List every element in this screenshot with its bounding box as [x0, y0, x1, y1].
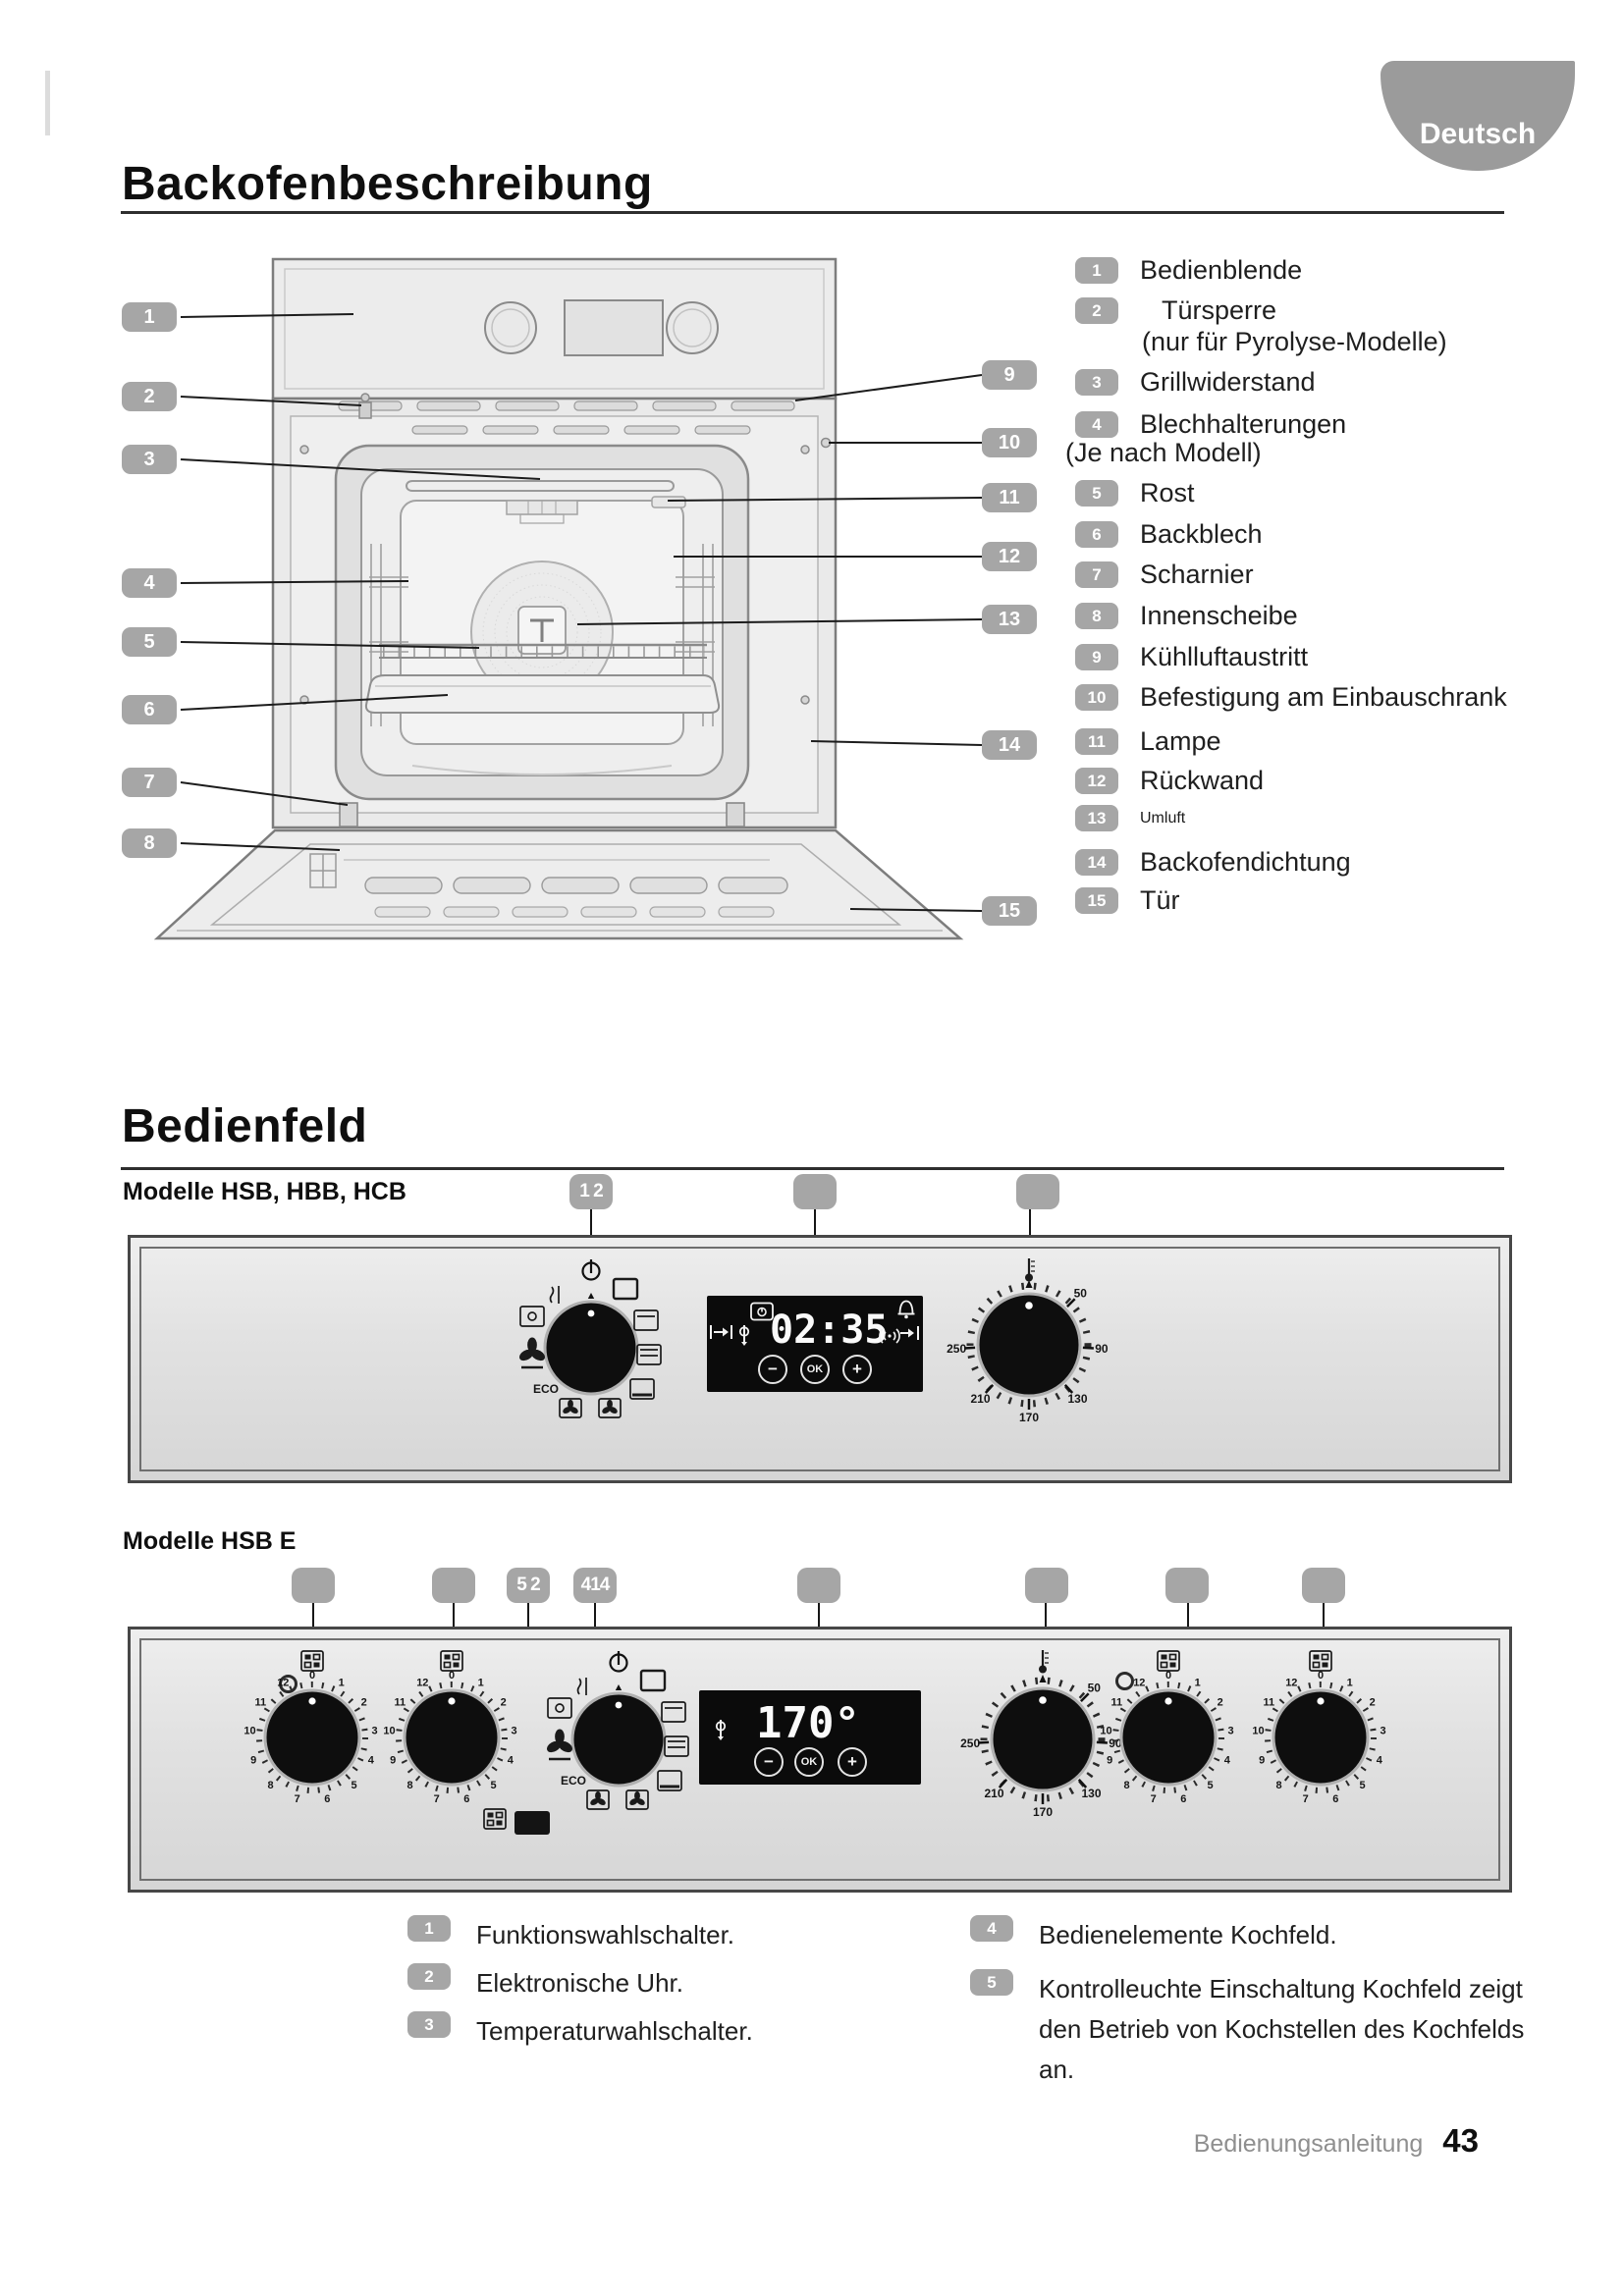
- hob-icon-pilot: [483, 1808, 507, 1830]
- list-item: 11Lampe: [1075, 726, 1221, 757]
- list-item: 5Rost: [1075, 478, 1195, 508]
- list-badge: 10: [1075, 684, 1118, 711]
- part-label: Befestigung am Einbauschrank: [1140, 682, 1507, 713]
- title-rule-2: [121, 1167, 1504, 1170]
- legend-badge: 1: [407, 1915, 451, 1942]
- legend-text: Bedienelemente Kochfeld.: [1039, 1915, 1337, 1955]
- part-label: Tür: [1140, 885, 1180, 916]
- diagram-badge-6: 6: [122, 695, 177, 724]
- ok-button: OK: [794, 1747, 824, 1777]
- list-item: 15Tür: [1075, 885, 1180, 916]
- list-item: 3Grillwiderstand: [1075, 367, 1316, 398]
- list-badge: 7: [1075, 561, 1118, 588]
- page-footer: Bedienungsanleitung 43: [1129, 2122, 1479, 2160]
- legend-item-1: 1 Funktionswahlschalter.: [407, 1915, 734, 1955]
- temperature-digits: 170°: [734, 1698, 882, 1748]
- plus-button: +: [842, 1355, 872, 1384]
- list-badge: 8: [1075, 603, 1118, 629]
- part-label: Scharnier: [1140, 560, 1254, 590]
- list-badge: 9: [1075, 644, 1118, 670]
- legend-item-3: 3 Temperaturwahlschalter.: [407, 2011, 753, 2052]
- list-item: 1Bedienblende: [1075, 255, 1302, 286]
- legend-text: Elektronische Uhr.: [476, 1963, 683, 2003]
- legend-badge: 4: [970, 1915, 1013, 1942]
- section-title-oven: Backofenbeschreibung: [122, 157, 653, 211]
- minus-button: −: [758, 1355, 787, 1384]
- page-margin-mark: [45, 71, 50, 135]
- diagram-badge-5: 5: [122, 627, 177, 657]
- clock-display: 02:35 − OK +: [707, 1296, 923, 1392]
- diagram-badge-11: 11: [982, 483, 1037, 512]
- list-item: 7Scharnier: [1075, 560, 1254, 590]
- legend-text: Temperaturwahlschalter.: [476, 2011, 753, 2052]
- panel2-badge-3: 5 2: [507, 1568, 550, 1603]
- list-badge: 13: [1075, 805, 1118, 831]
- end-time-icon: [899, 1325, 921, 1341]
- model1-label: Modelle HSB, HBB, HCB: [123, 1178, 406, 1206]
- legend-badge: 3: [407, 2011, 451, 2038]
- diagram-badge-12: 12: [982, 542, 1037, 571]
- title-rule: [121, 211, 1504, 214]
- list-badge: 5: [1075, 480, 1118, 507]
- oven-diagram: [118, 253, 1031, 945]
- diagram-badge-1: 1: [122, 302, 177, 332]
- ok-label: OK: [801, 1756, 818, 1768]
- parts-list: 1Bedienblende 2Türsperre (nur für Pyroly…: [1075, 250, 1546, 937]
- list-badge: 4: [1075, 411, 1118, 438]
- oven-illustration: [157, 259, 982, 938]
- plus-button: +: [838, 1747, 867, 1777]
- start-time-icon: [709, 1323, 734, 1341]
- list-item: 13Umluft: [1075, 805, 1185, 831]
- legend-item-2: 2 Elektronische Uhr.: [407, 1963, 683, 2003]
- hob-pilot-lamp: [514, 1811, 550, 1835]
- part-label: Rost: [1140, 478, 1195, 508]
- diagram-badge-7: 7: [122, 768, 177, 797]
- panel2-badge-2: [432, 1568, 475, 1603]
- language-badge: Deutsch: [1380, 61, 1575, 171]
- list-item: 2Türsperre: [1075, 295, 1276, 326]
- panel2-badge-7: [1165, 1568, 1209, 1603]
- legend-item-5: 5 Kontrolleuchte Einschaltung Kochfeld z…: [970, 1969, 1542, 2090]
- panel2-badge-4: 414: [573, 1568, 617, 1603]
- minus-button: −: [754, 1747, 784, 1777]
- list-item: 6Backblech: [1075, 519, 1263, 550]
- diagram-badge-10: 10: [982, 428, 1037, 457]
- page-number: 43: [1442, 2122, 1479, 2160]
- list-badge: 1: [1075, 257, 1118, 284]
- function-knob-1: [483, 1240, 699, 1456]
- thermometer-icon-1: [1017, 1255, 1041, 1283]
- minus-label: −: [768, 1360, 778, 1379]
- diagram-badge-9: 9: [982, 360, 1037, 390]
- part-label: Grillwiderstand: [1140, 367, 1316, 398]
- plus-label: +: [852, 1360, 862, 1379]
- plus-label: +: [847, 1752, 857, 1772]
- diagram-badge-8: 8: [122, 828, 177, 858]
- panel2-badge-1: [292, 1568, 335, 1603]
- hob-knob-4: [1247, 1664, 1394, 1811]
- hob-knob-2: [378, 1664, 525, 1811]
- part-label: Umluft: [1140, 810, 1185, 828]
- list-badge: 14: [1075, 849, 1118, 876]
- model2-label: Modelle HSB E: [123, 1527, 296, 1556]
- part-label: Kühlluftaustritt: [1140, 642, 1308, 672]
- minus-label: −: [764, 1752, 774, 1772]
- part-label: Backofendichtung: [1140, 847, 1351, 878]
- legend-badge: 2: [407, 1963, 451, 1990]
- part-label: Innenscheibe: [1140, 601, 1298, 631]
- thermometer-icon-2: [1031, 1647, 1055, 1675]
- legend-item-4: 4 Bedienelemente Kochfeld.: [970, 1915, 1337, 1955]
- probe-icon-2: [713, 1716, 729, 1741]
- diagram-badge-3: 3: [122, 445, 177, 474]
- panel2-badge-6: [1025, 1568, 1068, 1603]
- diagram-badge-13: 13: [982, 605, 1037, 634]
- clock-digits: 02:35: [770, 1308, 888, 1353]
- ok-label: OK: [807, 1363, 824, 1375]
- section-title-bedienfeld: Bedienfeld: [122, 1099, 367, 1153]
- legend-text: Funktionswahlschalter.: [476, 1915, 734, 1955]
- panel2-badge-5: [797, 1568, 840, 1603]
- list-badge: 3: [1075, 369, 1118, 396]
- legend-text: Kontrolleuchte Einschaltung Kochfeld zei…: [1039, 1969, 1542, 2090]
- list-badge: 12: [1075, 768, 1118, 794]
- list-badge: 2: [1075, 297, 1118, 324]
- part-label: Blechhalterungen: [1140, 409, 1346, 440]
- diagram-badge-2: 2: [122, 382, 177, 411]
- list-item: 9Kühlluftaustritt: [1075, 642, 1308, 672]
- oven-lamp: [652, 497, 685, 507]
- manual-page: { "page": { "language_badge": "Deutsch",…: [0, 0, 1624, 2296]
- list-item: 4Blechhalterungen: [1075, 409, 1346, 440]
- part-label: Lampe: [1140, 726, 1221, 757]
- panel1-badge-3: [1016, 1174, 1059, 1209]
- list-item: 14Backofendichtung: [1075, 847, 1351, 878]
- panel1-badge-1: 1 2: [569, 1174, 613, 1209]
- baking-tray: [366, 675, 719, 713]
- list-badge: 15: [1075, 887, 1118, 914]
- diagram-badge-14: 14: [982, 730, 1037, 760]
- list-item: 8Innenscheibe: [1075, 601, 1298, 631]
- part-label: Türsperre: [1162, 295, 1276, 326]
- hob-knob-3: [1095, 1664, 1242, 1811]
- diagram-badge-15: 15: [982, 896, 1037, 926]
- sound-icon-1: [880, 1327, 899, 1345]
- legend-badge: 5: [970, 1969, 1013, 1996]
- temperature-display: 170° − OK +: [699, 1690, 921, 1785]
- bell-icon-1: [895, 1300, 917, 1319]
- panel2-badge-8: [1302, 1568, 1345, 1603]
- list-item: 10Befestigung am Einbauschrank: [1075, 682, 1507, 713]
- hob-knob-1: [239, 1664, 386, 1811]
- probe-icon-1: [736, 1321, 752, 1347]
- part-label: Rückwand: [1140, 766, 1264, 796]
- list-badge: 6: [1075, 521, 1118, 548]
- ok-button: OK: [800, 1355, 830, 1384]
- diagram-badge-4: 4: [122, 568, 177, 598]
- part-label: Backblech: [1140, 519, 1263, 550]
- part-note: (Je nach Modell): [1065, 438, 1262, 468]
- part-label: Bedienblende: [1140, 255, 1302, 286]
- list-item: 12Rückwand: [1075, 766, 1264, 796]
- part-note: (nur für Pyrolyse-Modelle): [1142, 327, 1447, 357]
- list-badge: 11: [1075, 728, 1118, 755]
- panel1-badge-2: [793, 1174, 837, 1209]
- footer-label: Bedienungsanleitung: [1194, 2130, 1424, 2159]
